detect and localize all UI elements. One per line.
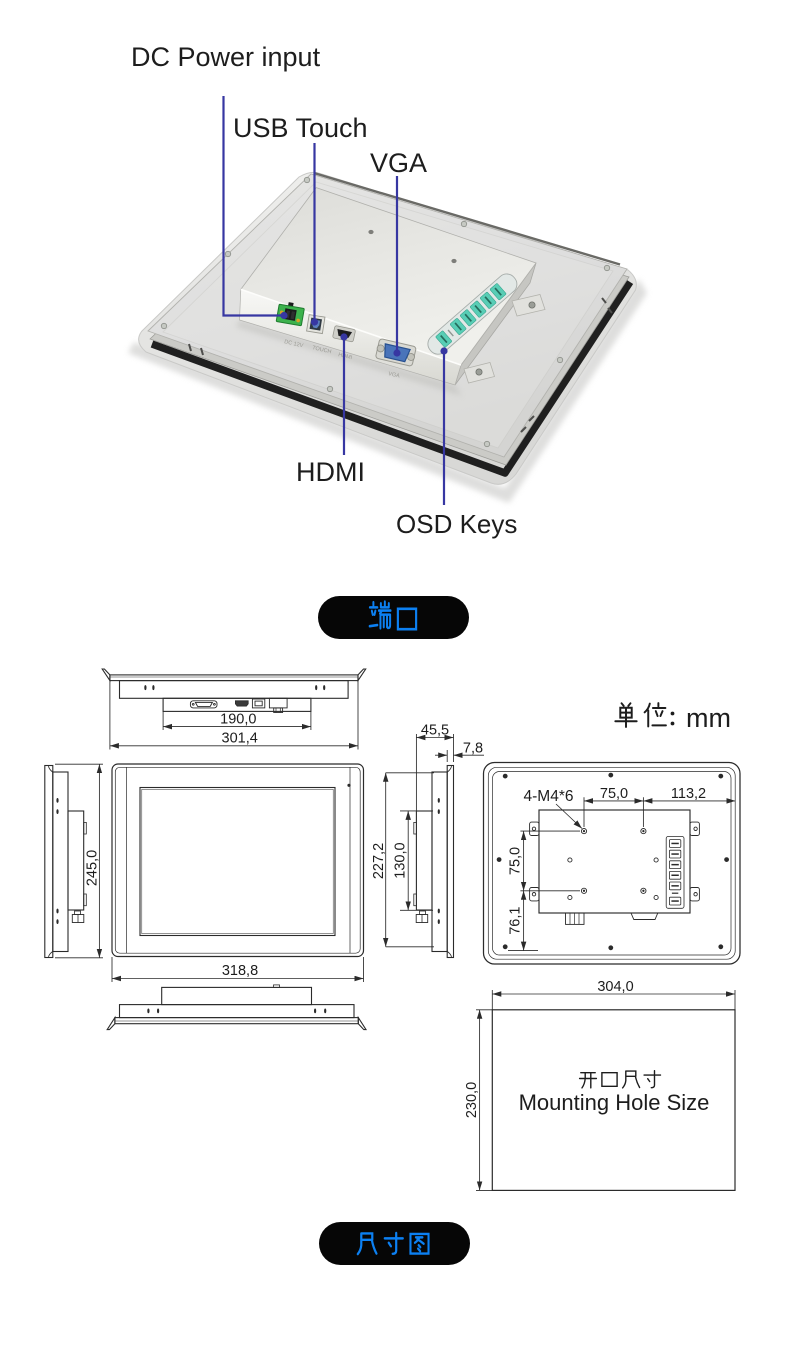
svg-text:Mounting Hole Size: Mounting Hole Size (519, 1090, 710, 1115)
svg-text:4-M4*6: 4-M4*6 (524, 788, 574, 805)
svg-text:75,0: 75,0 (508, 847, 524, 875)
svg-text:301,4: 301,4 (222, 730, 258, 746)
svg-text:304,0: 304,0 (597, 979, 633, 995)
svg-text:190,0: 190,0 (220, 711, 256, 727)
svg-text:mm: mm (686, 703, 731, 733)
svg-text:318,8: 318,8 (222, 963, 258, 979)
svg-text:245,0: 245,0 (85, 850, 101, 886)
svg-text:227,2: 227,2 (371, 843, 387, 879)
svg-text:HDMI: HDMI (296, 457, 365, 487)
svg-text:7,8: 7,8 (463, 741, 483, 757)
svg-text:45,5: 45,5 (421, 723, 449, 739)
svg-text:130,0: 130,0 (393, 842, 409, 878)
svg-text:76,1: 76,1 (508, 907, 524, 935)
svg-text:USB Touch: USB Touch (233, 113, 368, 143)
svg-text:DC Power input: DC Power input (131, 42, 321, 72)
svg-text:OSD Keys: OSD Keys (396, 509, 517, 539)
svg-text:113,2: 113,2 (671, 786, 706, 802)
svg-text:VGA: VGA (370, 148, 427, 178)
svg-text:230,0: 230,0 (464, 1082, 480, 1118)
svg-text:75,0: 75,0 (600, 786, 628, 802)
